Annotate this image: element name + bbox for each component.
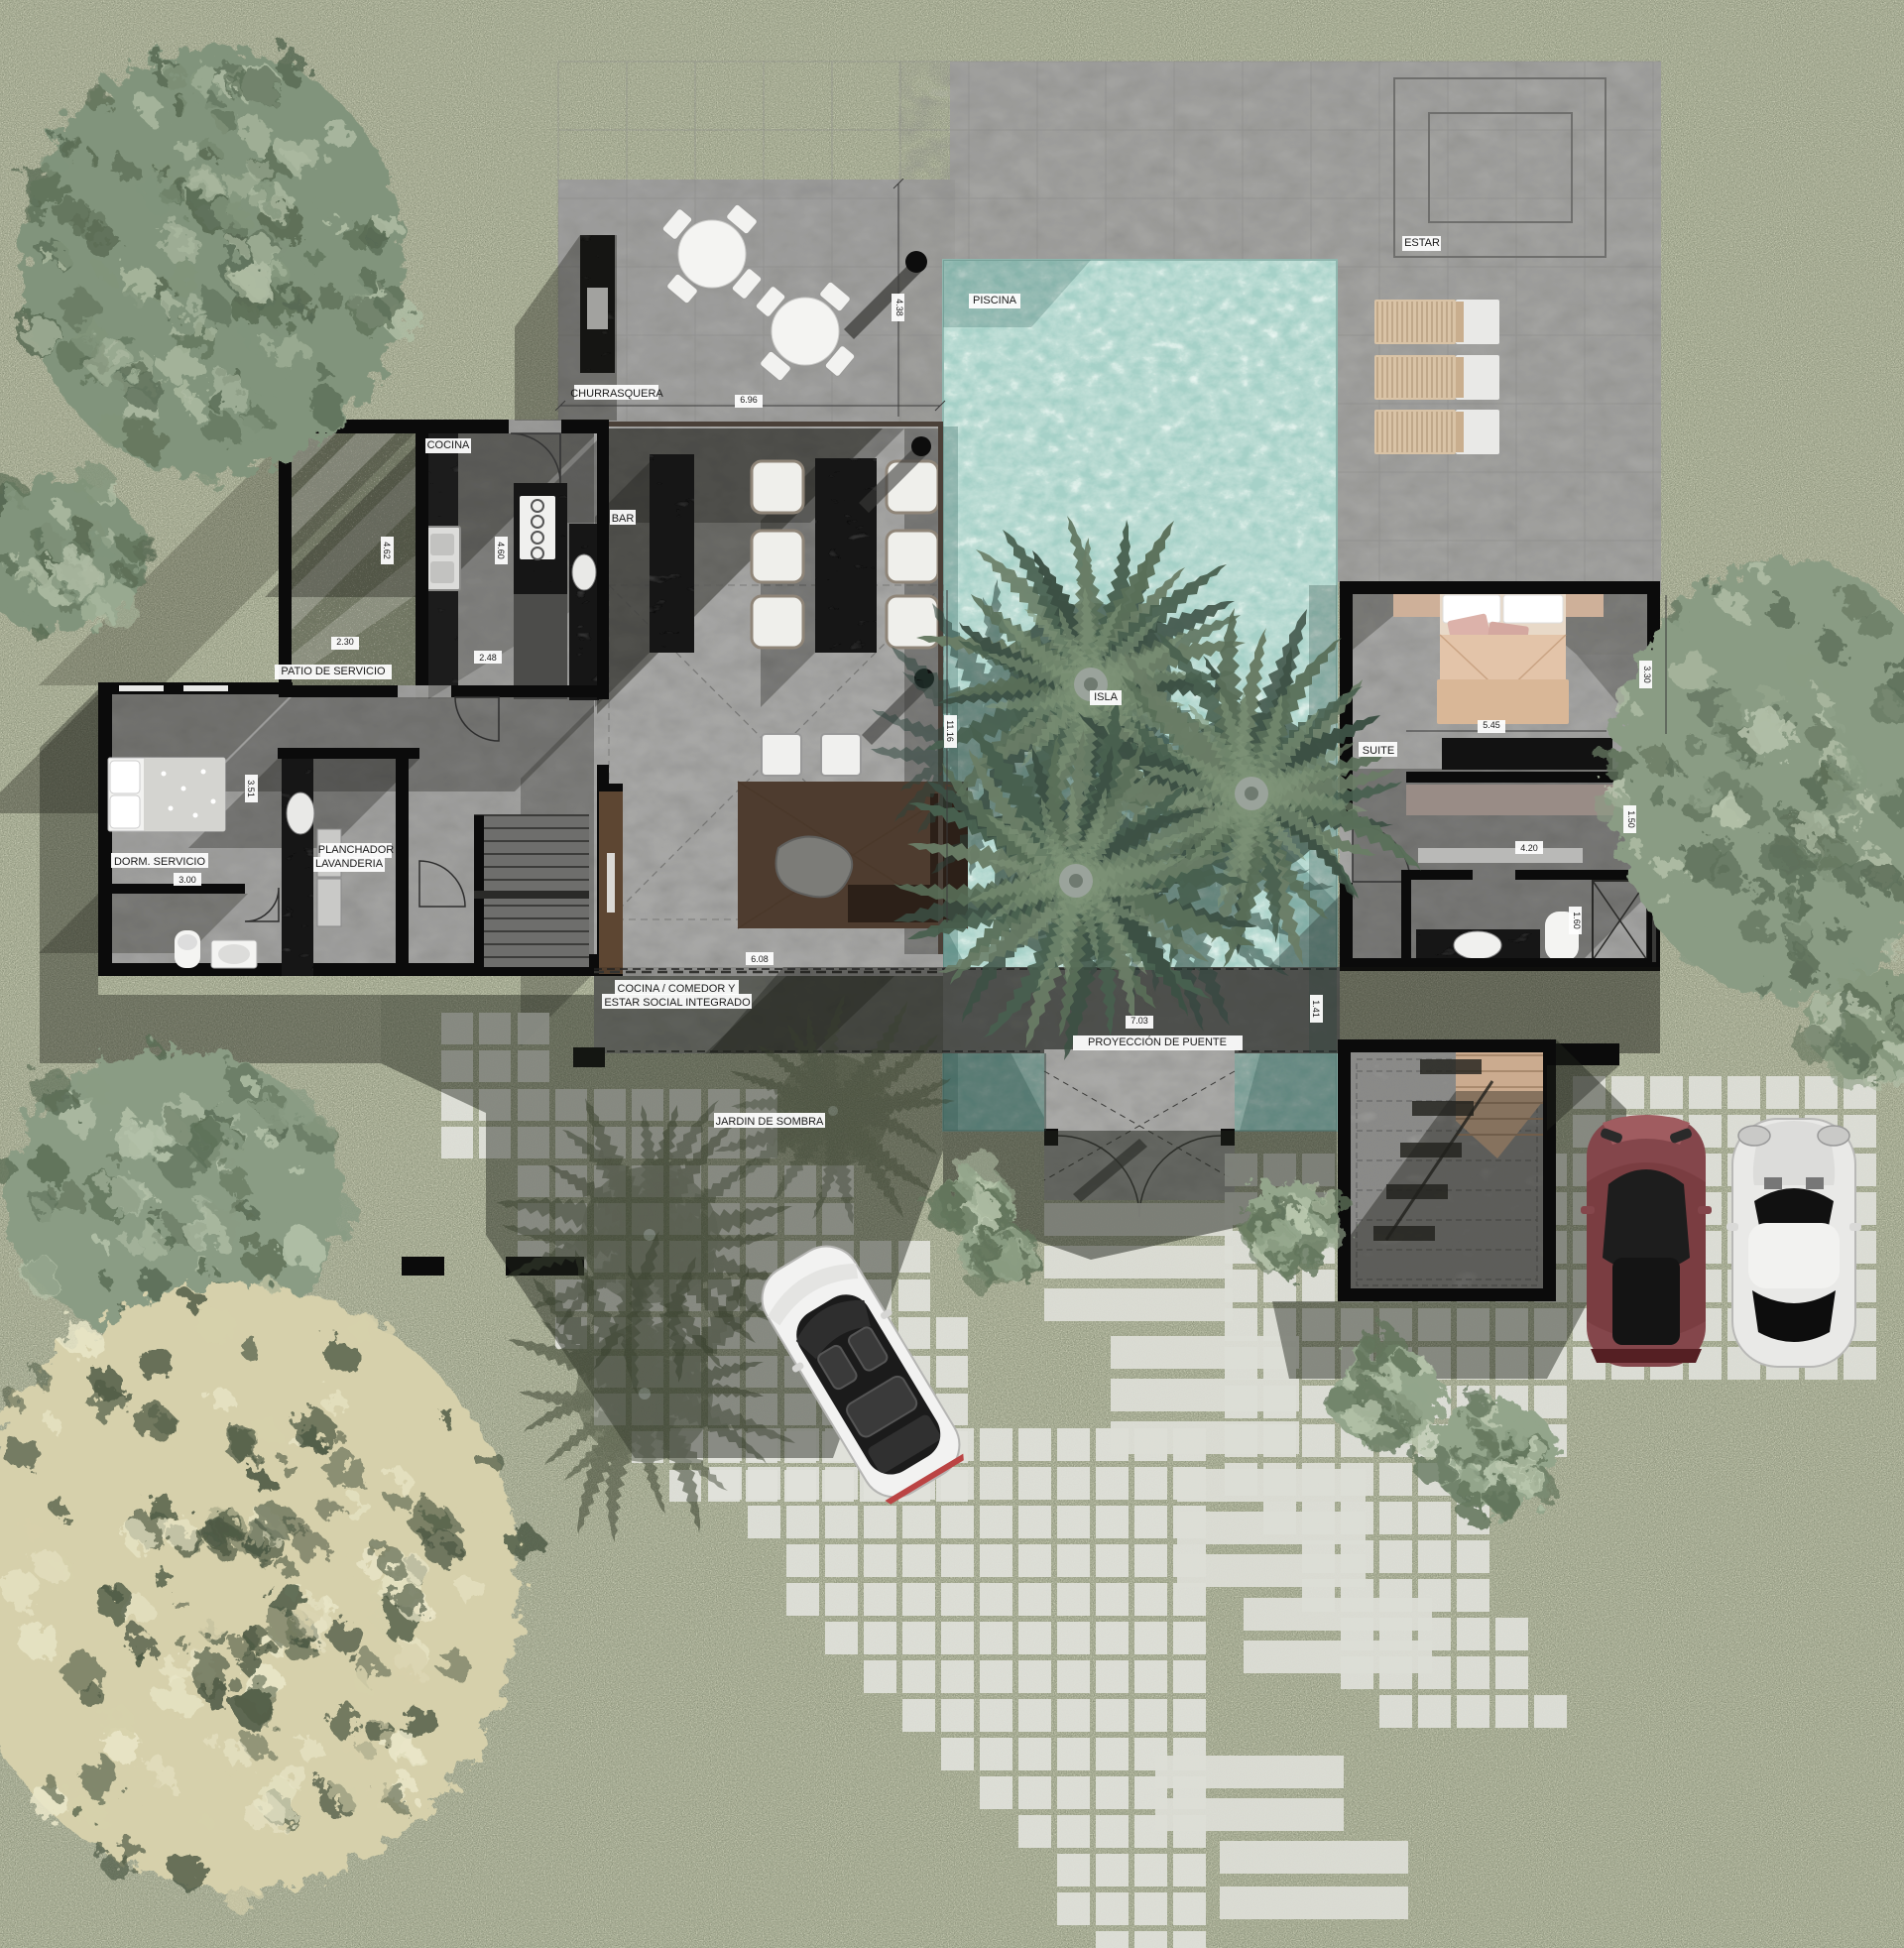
svg-text:4.20: 4.20: [1520, 843, 1538, 853]
svg-text:BAR: BAR: [612, 513, 635, 525]
svg-text:COCINA: COCINA: [427, 439, 470, 451]
svg-text:1.41: 1.41: [1311, 1000, 1321, 1018]
svg-text:JARDIN DE SOMBRA: JARDIN DE SOMBRA: [716, 1116, 824, 1128]
svg-text:ESTAR SOCIAL INTEGRADO: ESTAR SOCIAL INTEGRADO: [604, 997, 751, 1009]
svg-text:4.38: 4.38: [894, 299, 904, 316]
svg-text:2.48: 2.48: [479, 653, 497, 663]
svg-text:SUITE: SUITE: [1363, 745, 1394, 757]
svg-text:7.03: 7.03: [1130, 1016, 1148, 1026]
svg-text:ISLA: ISLA: [1094, 691, 1119, 703]
svg-text:2.30: 2.30: [336, 637, 354, 647]
svg-text:COCINA / COMEDOR Y: COCINA / COMEDOR Y: [618, 983, 737, 995]
svg-text:PATIO DE SERVICIO: PATIO DE SERVICIO: [281, 666, 386, 677]
svg-text:DORM. SERVICIO: DORM. SERVICIO: [114, 856, 206, 868]
svg-text:CHURRASQUERA: CHURRASQUERA: [570, 388, 663, 400]
svg-text:3.30: 3.30: [1642, 666, 1652, 683]
svg-text:4.62: 4.62: [382, 542, 392, 559]
svg-text:6.08: 6.08: [751, 954, 769, 964]
svg-text:PLANCHADOR: PLANCHADOR: [318, 844, 394, 856]
svg-text:LAVANDERIA: LAVANDERIA: [315, 858, 384, 870]
svg-text:ESTAR: ESTAR: [1404, 237, 1440, 249]
svg-text:6.96: 6.96: [740, 395, 758, 405]
svg-text:11.16: 11.16: [945, 720, 955, 742]
svg-text:1.50: 1.50: [1626, 810, 1636, 828]
svg-text:5.45: 5.45: [1483, 720, 1500, 730]
svg-text:PROYECCIÓN DE PUENTE: PROYECCIÓN DE PUENTE: [1088, 1035, 1227, 1048]
svg-text:3.00: 3.00: [178, 875, 196, 885]
svg-text:1.60: 1.60: [1572, 912, 1582, 929]
svg-text:PISCINA: PISCINA: [973, 295, 1017, 306]
svg-text:4.60: 4.60: [496, 542, 506, 559]
svg-text:3.51: 3.51: [246, 780, 256, 797]
